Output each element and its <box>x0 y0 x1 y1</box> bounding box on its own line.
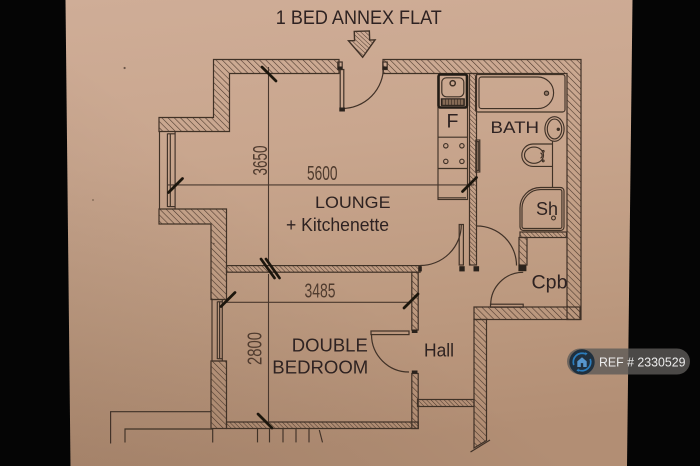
svg-text:2800: 2800 <box>245 332 267 365</box>
svg-text:Hall: Hall <box>424 341 454 361</box>
svg-text:F: F <box>447 111 459 133</box>
svg-text:3650: 3650 <box>250 146 272 176</box>
svg-text:LOUNGE: LOUNGE <box>315 193 391 212</box>
svg-text:BATH: BATH <box>491 118 540 137</box>
svg-text:3485: 3485 <box>305 281 336 303</box>
svg-text:BEDROOM: BEDROOM <box>272 358 368 378</box>
svg-text:Cpb: Cpb <box>532 273 568 294</box>
svg-text:5600: 5600 <box>307 163 338 185</box>
svg-text:1 BED ANNEX FLAT: 1 BED ANNEX FLAT <box>276 7 442 29</box>
svg-text:+ Kitchenette: + Kitchenette <box>286 215 389 235</box>
svg-text:REF # 2330529: REF # 2330529 <box>599 355 686 370</box>
svg-text:Sh: Sh <box>536 199 558 219</box>
svg-text:DOUBLE: DOUBLE <box>292 335 368 355</box>
